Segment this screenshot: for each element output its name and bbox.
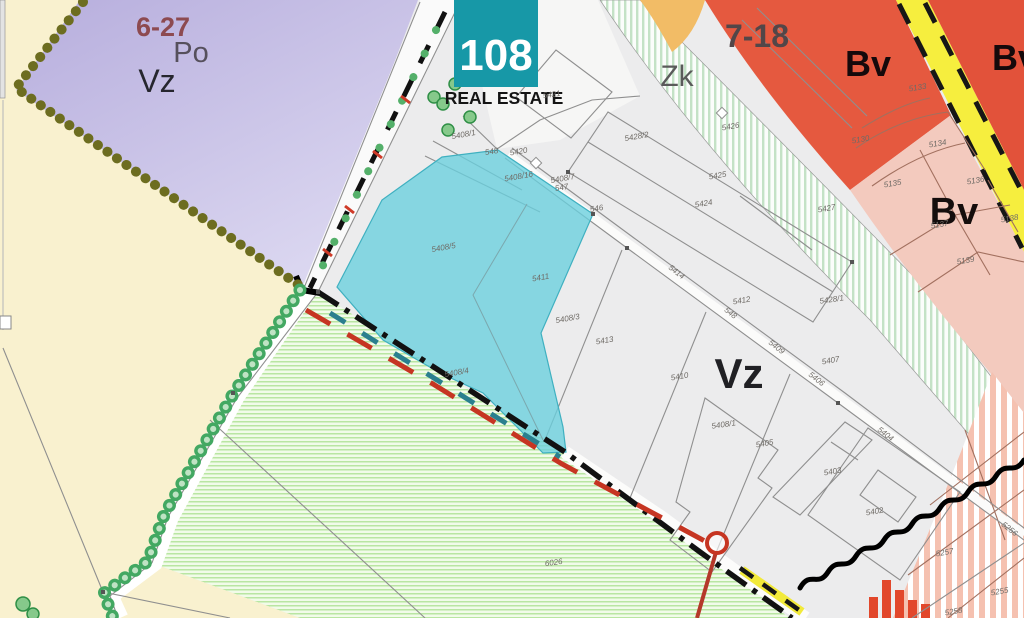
red-circle-marker: [707, 533, 727, 553]
zone-label-bv-top: Bv: [845, 43, 891, 84]
red-bar: [869, 597, 878, 618]
tree-icon: [16, 597, 30, 611]
scrollbar-fragment[interactable]: [0, 0, 5, 98]
map-handle[interactable]: [0, 316, 11, 329]
tree-icon: [27, 608, 39, 618]
zone-label-vz-left: Vz: [138, 63, 175, 99]
tree-icon: [464, 111, 476, 123]
zone-label-zk: Zk: [660, 60, 694, 93]
zone-label-vz-main: Vz: [714, 350, 763, 397]
node: [836, 401, 840, 405]
node: [101, 590, 105, 594]
zone-label-po: Po: [173, 37, 208, 69]
zone-label-7-18: 7-18: [725, 18, 789, 54]
node: [231, 391, 235, 395]
node: [625, 246, 629, 250]
logo-number: 108: [459, 31, 532, 80]
node: [850, 260, 854, 264]
node: [316, 290, 320, 294]
red-bar: [895, 590, 904, 618]
zone-label-bv-right: Bv: [992, 37, 1024, 78]
cadastral-map[interactable]: 108 REAL ESTATE 6-27PoVzZk7-18BvBvBvVz 5…: [0, 0, 1024, 618]
red-bar: [882, 580, 891, 618]
